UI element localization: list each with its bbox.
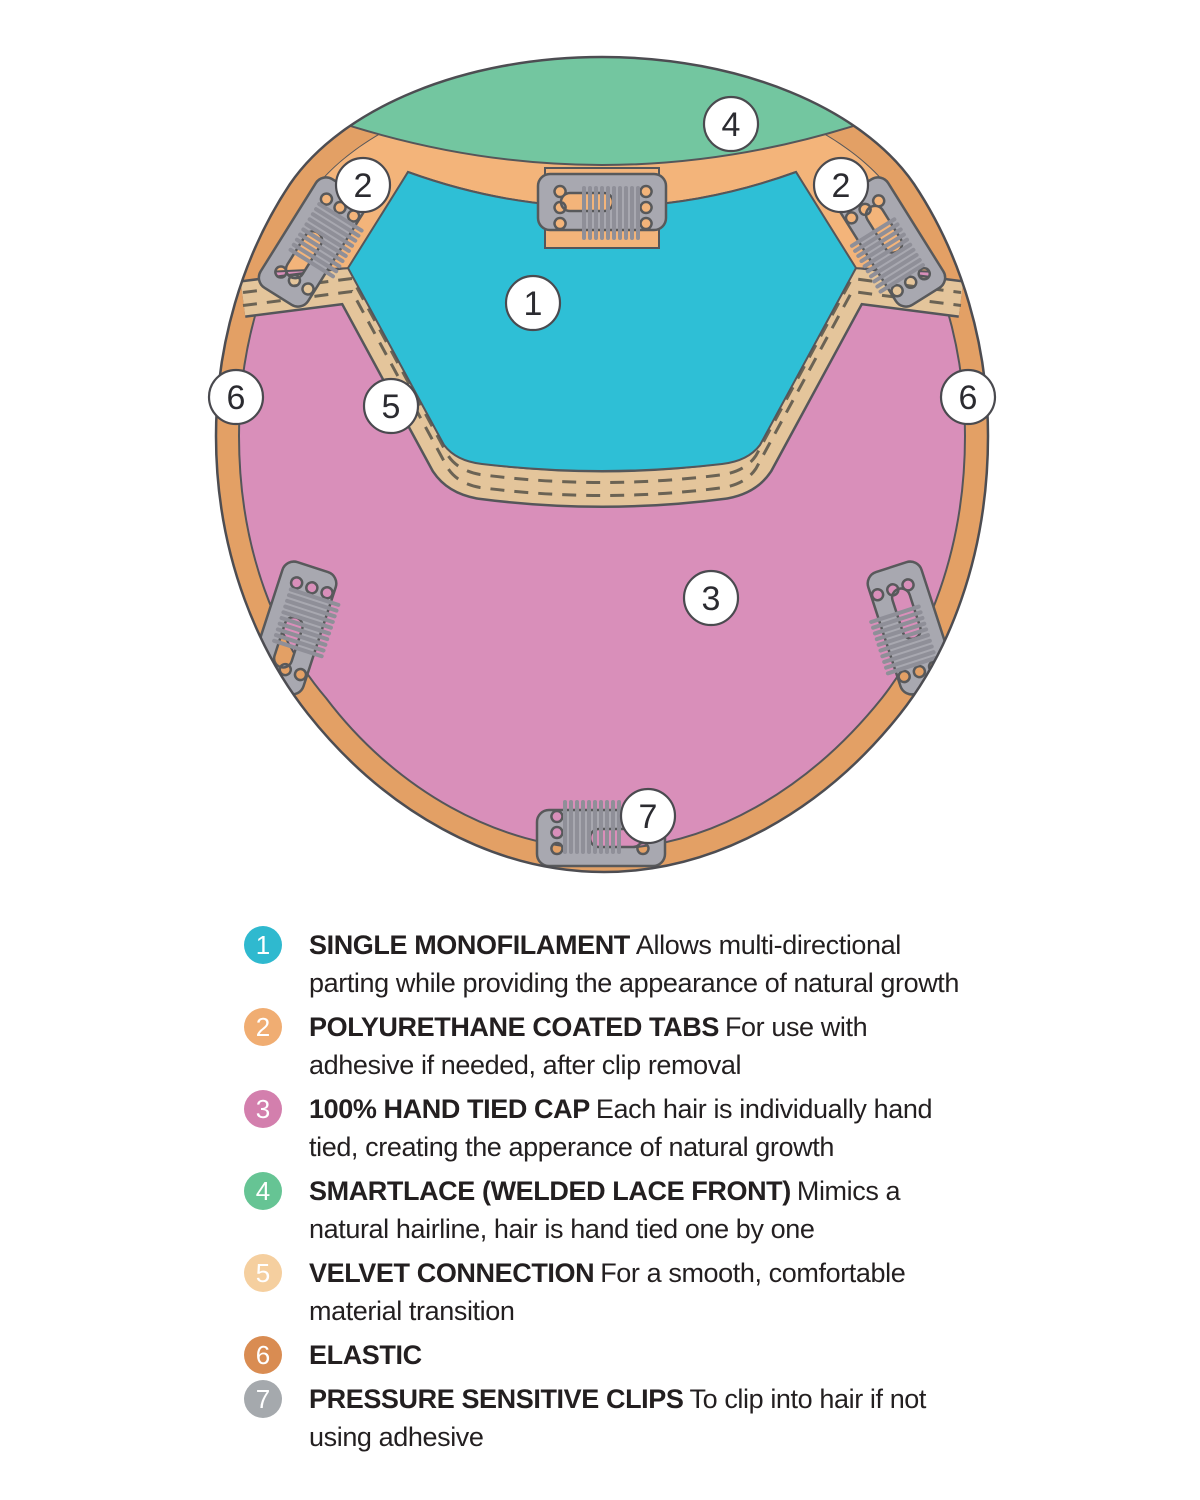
diagram-label-number: 5 bbox=[382, 388, 401, 426]
legend-item-title: SMARTLACE (WELDED LACE FRONT) bbox=[309, 1176, 791, 1206]
legend-bullet: 5 bbox=[244, 1254, 282, 1292]
legend-item-title: 100% HAND TIED CAP bbox=[309, 1094, 590, 1124]
legend-item-title: SINGLE MONOFILAMENT bbox=[309, 930, 630, 960]
smartlace-region bbox=[204, 20, 1000, 165]
legend-item: 7 PRESSURE SENSITIVE CLIPSTo clip into h… bbox=[244, 1380, 974, 1456]
legend-item-title: PRESSURE SENSITIVE CLIPS bbox=[309, 1384, 684, 1414]
diagram-label-number: 7 bbox=[639, 798, 658, 836]
diagram-label-number: 4 bbox=[722, 106, 741, 144]
legend-item-title: VELVET CONNECTION bbox=[309, 1258, 594, 1288]
legend-item: 2 POLYURETHANE COATED TABSFor use with a… bbox=[244, 1008, 974, 1084]
diagram-label-number: 3 bbox=[702, 580, 721, 618]
legend-bullet: 3 bbox=[244, 1090, 282, 1128]
legend-item: 6 ELASTIC bbox=[244, 1336, 974, 1374]
legend-bullet: 6 bbox=[244, 1336, 282, 1374]
legend-item: 5 VELVET CONNECTIONFor a smooth, comfort… bbox=[244, 1254, 974, 1330]
diagram-label-number: 6 bbox=[959, 379, 978, 417]
legend-bullet: 2 bbox=[244, 1008, 282, 1046]
legend-bullet: 7 bbox=[244, 1380, 282, 1418]
diagram-label-number: 6 bbox=[227, 379, 246, 417]
diagram-label-number: 2 bbox=[354, 167, 373, 205]
diagram-label-number: 2 bbox=[832, 167, 851, 205]
legend-item: 1 SINGLE MONOFILAMENTAllows multi-direct… bbox=[244, 926, 974, 1002]
legend-bullet: 1 bbox=[244, 926, 282, 964]
legend-bullet: 4 bbox=[244, 1172, 282, 1210]
legend-item: 4 SMARTLACE (WELDED LACE FRONT)Mimics a … bbox=[244, 1172, 974, 1248]
legend: 1 SINGLE MONOFILAMENTAllows multi-direct… bbox=[244, 926, 974, 1462]
diagram-label-number: 1 bbox=[524, 285, 543, 323]
legend-item-title: ELASTIC bbox=[309, 1340, 422, 1370]
legend-item: 3 100% HAND TIED CAPEach hair is individ… bbox=[244, 1090, 974, 1166]
wig-cap-construction-page: 122345667 1 SINGLE MONOFILAMENTAllows mu… bbox=[0, 0, 1200, 1500]
wig-cap-diagram: 122345667 bbox=[0, 0, 1200, 912]
legend-item-title: POLYURETHANE COATED TABS bbox=[309, 1012, 719, 1042]
